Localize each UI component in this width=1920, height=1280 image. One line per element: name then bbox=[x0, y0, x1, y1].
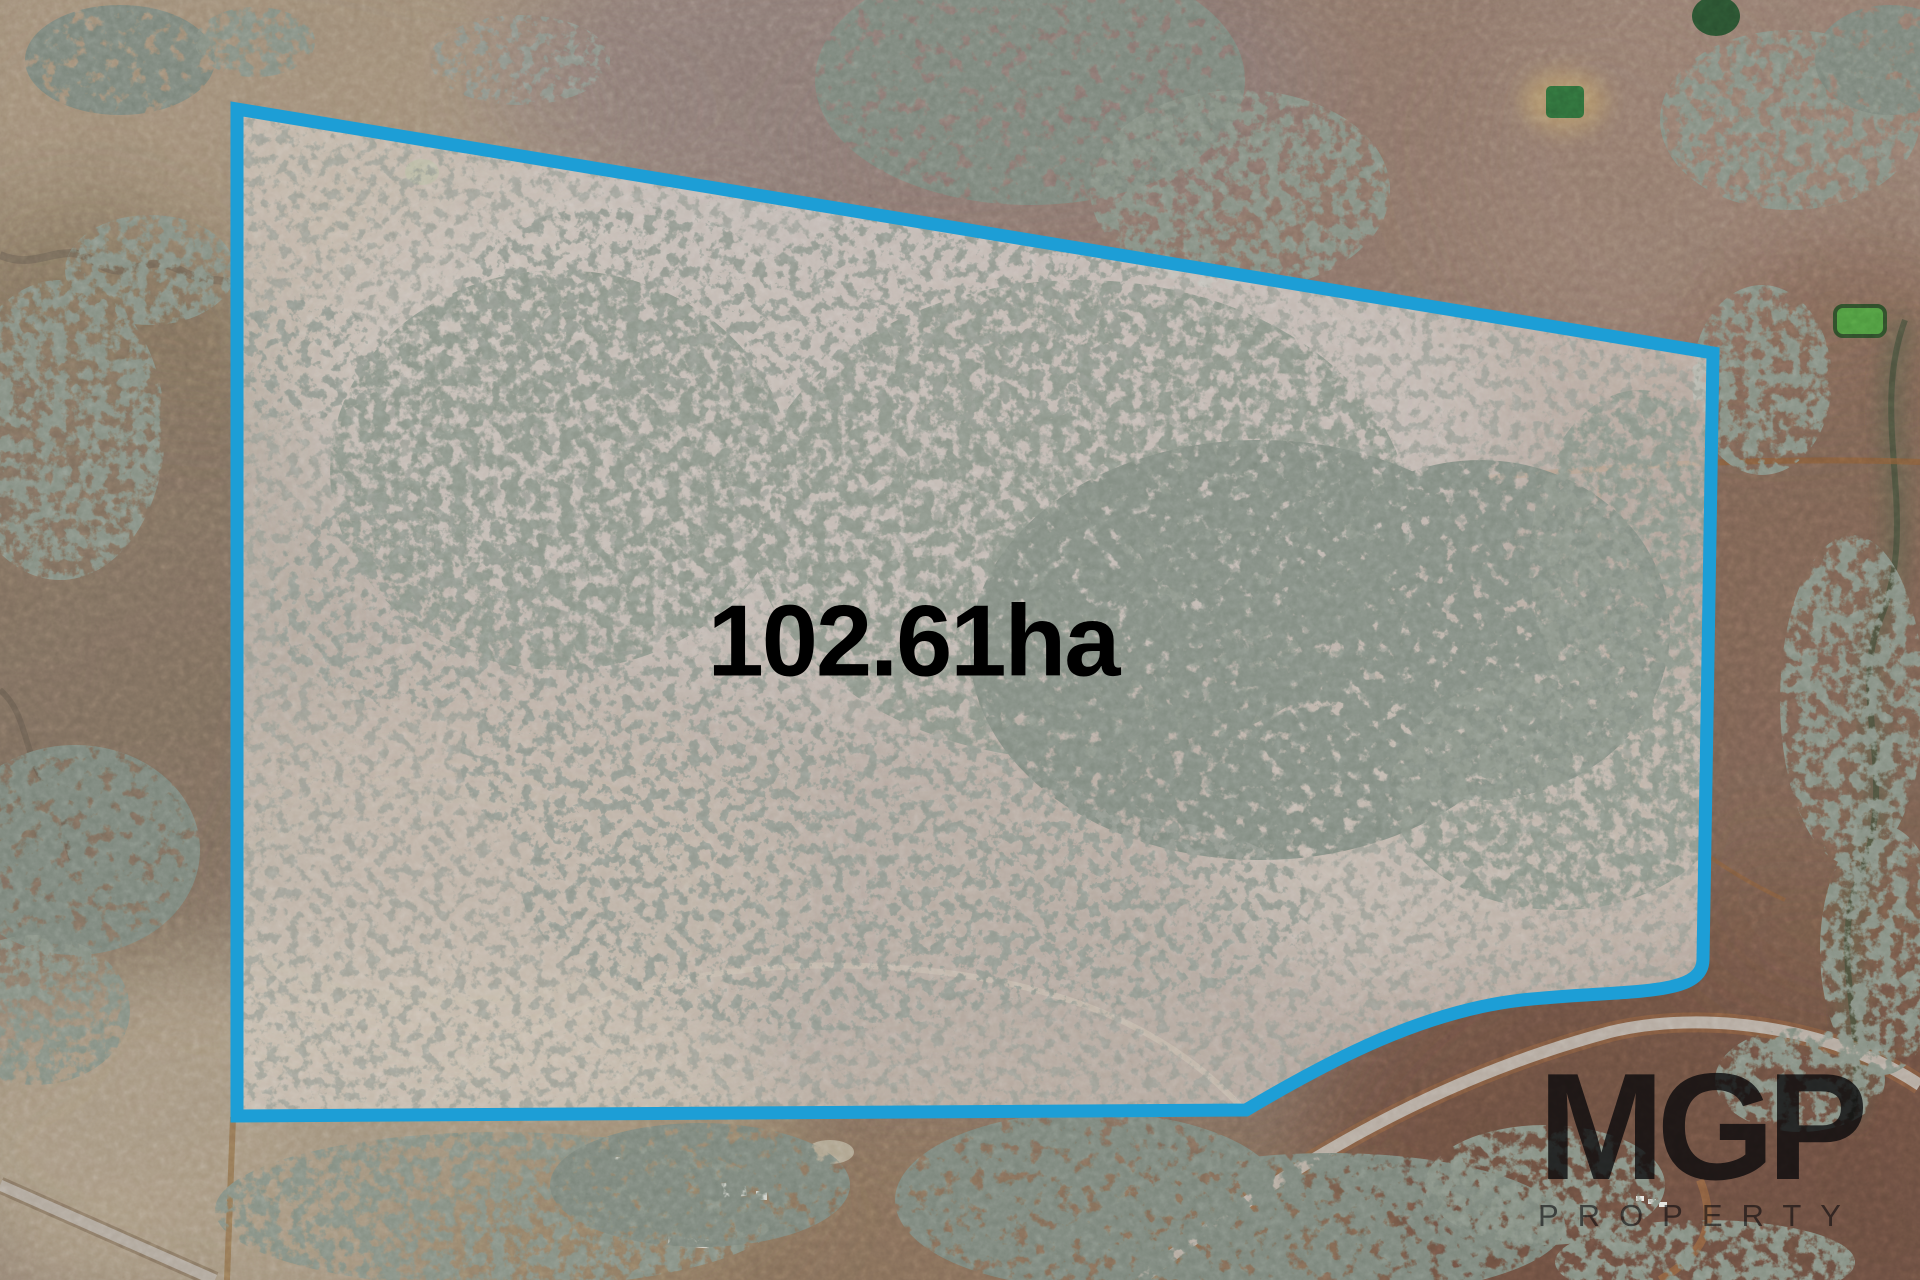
mgp-logo-text: MGP bbox=[1538, 1058, 1868, 1198]
mgp-logo-subtext: PROPERTY bbox=[1538, 1200, 1868, 1231]
aerial-property-map: 102.61ha MGP PROPERTY bbox=[0, 0, 1920, 1280]
mgp-logo: MGP PROPERTY bbox=[1538, 1058, 1868, 1231]
area-label: 102.61ha bbox=[708, 592, 1119, 693]
